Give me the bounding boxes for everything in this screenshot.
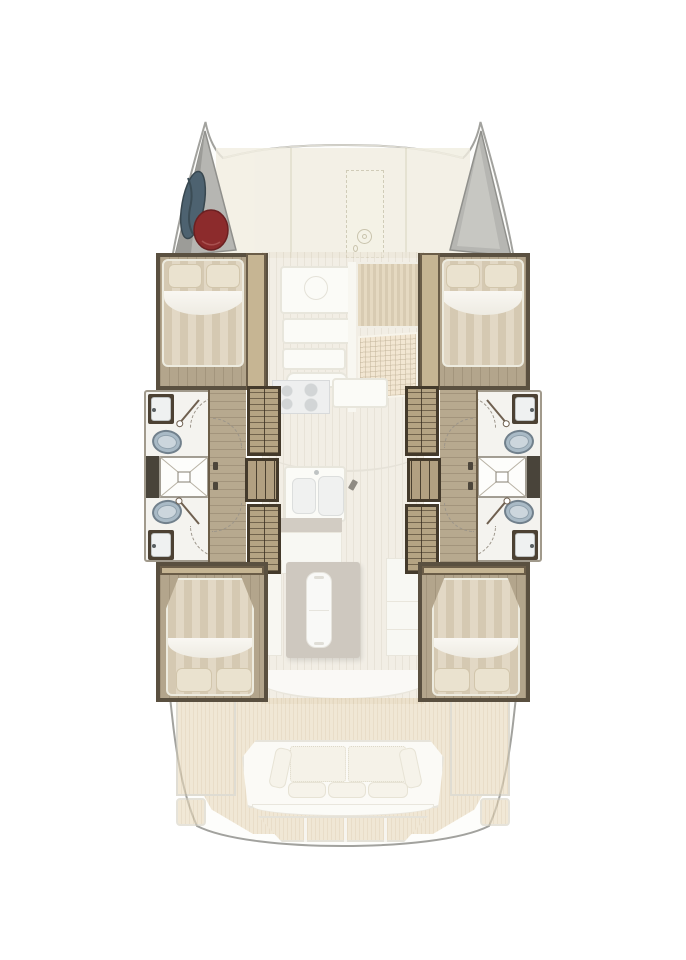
pillow	[474, 668, 510, 692]
door-swing-arc	[444, 502, 474, 532]
stair-landing	[407, 458, 441, 502]
toilet	[502, 428, 535, 456]
pillow	[216, 668, 252, 692]
toilet	[150, 428, 183, 456]
hull-corridor	[440, 390, 478, 562]
faucet-icon	[530, 408, 534, 412]
pillow	[168, 264, 202, 288]
stair-landing	[245, 458, 279, 502]
aft-double-bed	[432, 578, 520, 696]
faucet-icon	[152, 544, 156, 548]
washbasin	[512, 530, 538, 560]
aft-cabin	[156, 562, 268, 702]
latch-icon	[468, 482, 473, 490]
shower-pan	[159, 456, 209, 498]
door-swing-arc	[212, 502, 242, 532]
toilet-seat	[508, 504, 530, 521]
bed-sheet-fold	[432, 638, 518, 658]
toilet-seat	[156, 504, 178, 521]
stair-run-forward	[405, 386, 439, 456]
aft-double-bed	[166, 578, 254, 696]
stair-run-forward	[247, 386, 281, 456]
washbasin	[512, 394, 538, 424]
forward-double-bed	[442, 259, 524, 367]
forward-double-bed	[162, 259, 244, 367]
catamaran-floor-plan	[0, 0, 686, 960]
shower-pan	[477, 456, 527, 498]
cabin-forward-wall	[422, 566, 526, 575]
pillow	[446, 264, 480, 288]
latch-icon	[468, 462, 473, 470]
starboard-hull	[404, 250, 546, 705]
aft-cabin	[418, 562, 530, 702]
faucet-icon	[152, 408, 156, 412]
bed-sheet-fold	[164, 291, 244, 315]
toilet-seat	[156, 434, 178, 451]
pillow	[206, 264, 240, 288]
washbasin	[148, 394, 174, 424]
port-hull	[140, 250, 282, 705]
door-swing-arc	[212, 418, 242, 448]
door-leaf	[179, 500, 200, 524]
bed-sheet-fold	[168, 638, 254, 658]
cabin-inboard-wall	[246, 253, 266, 390]
door-swing-arc	[444, 418, 474, 448]
pillow	[484, 264, 518, 288]
latch-icon	[213, 462, 218, 470]
wet-locker	[527, 456, 540, 498]
toilet-seat	[508, 434, 530, 451]
wet-locker	[146, 456, 159, 498]
bow-lockers	[0, 0, 686, 960]
bed-sheet-fold	[442, 291, 522, 315]
cabin-inboard-wall	[420, 253, 440, 390]
pillow	[434, 668, 470, 692]
latch-icon	[213, 482, 218, 490]
cabin-forward-wall	[160, 566, 264, 575]
hull-corridor	[208, 390, 246, 562]
pillow	[176, 668, 212, 692]
washbasin	[148, 530, 174, 560]
faucet-icon	[530, 544, 534, 548]
